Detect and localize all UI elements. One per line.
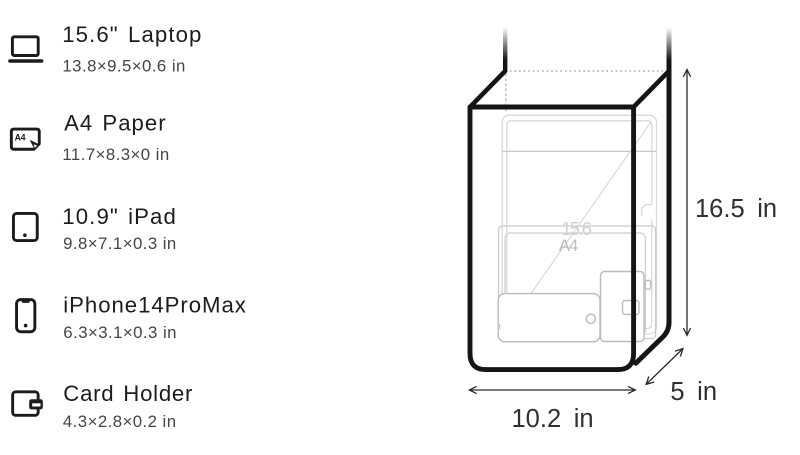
svg-text:A4: A4 — [559, 236, 578, 255]
svg-text:6.3×3.1×0.3 in: 6.3×3.1×0.3 in — [63, 323, 177, 342]
svg-text:11.7×8.3×0 in: 11.7×8.3×0 in — [62, 145, 169, 164]
svg-text:16.5 in: 16.5 in — [695, 195, 777, 223]
svg-text:iPhone14ProMax: iPhone14ProMax — [63, 293, 247, 318]
svg-text:13.8×9.5×0.6 in: 13.8×9.5×0.6 in — [62, 57, 185, 76]
svg-text:15.6" Laptop: 15.6" Laptop — [62, 22, 202, 47]
svg-text:10.9" iPad: 10.9" iPad — [62, 204, 177, 229]
svg-text:5 in: 5 in — [670, 378, 717, 406]
svg-text:10.2 in: 10.2 in — [512, 405, 594, 433]
svg-text:A4: A4 — [15, 133, 26, 143]
svg-text:A4 Paper: A4 Paper — [64, 111, 167, 136]
svg-text:Card Holder: Card Holder — [63, 381, 193, 406]
svg-text:9.8×7.1×0.3 in: 9.8×7.1×0.3 in — [63, 234, 177, 253]
svg-text:4.3×2.8×0.2 in: 4.3×2.8×0.2 in — [63, 412, 177, 431]
